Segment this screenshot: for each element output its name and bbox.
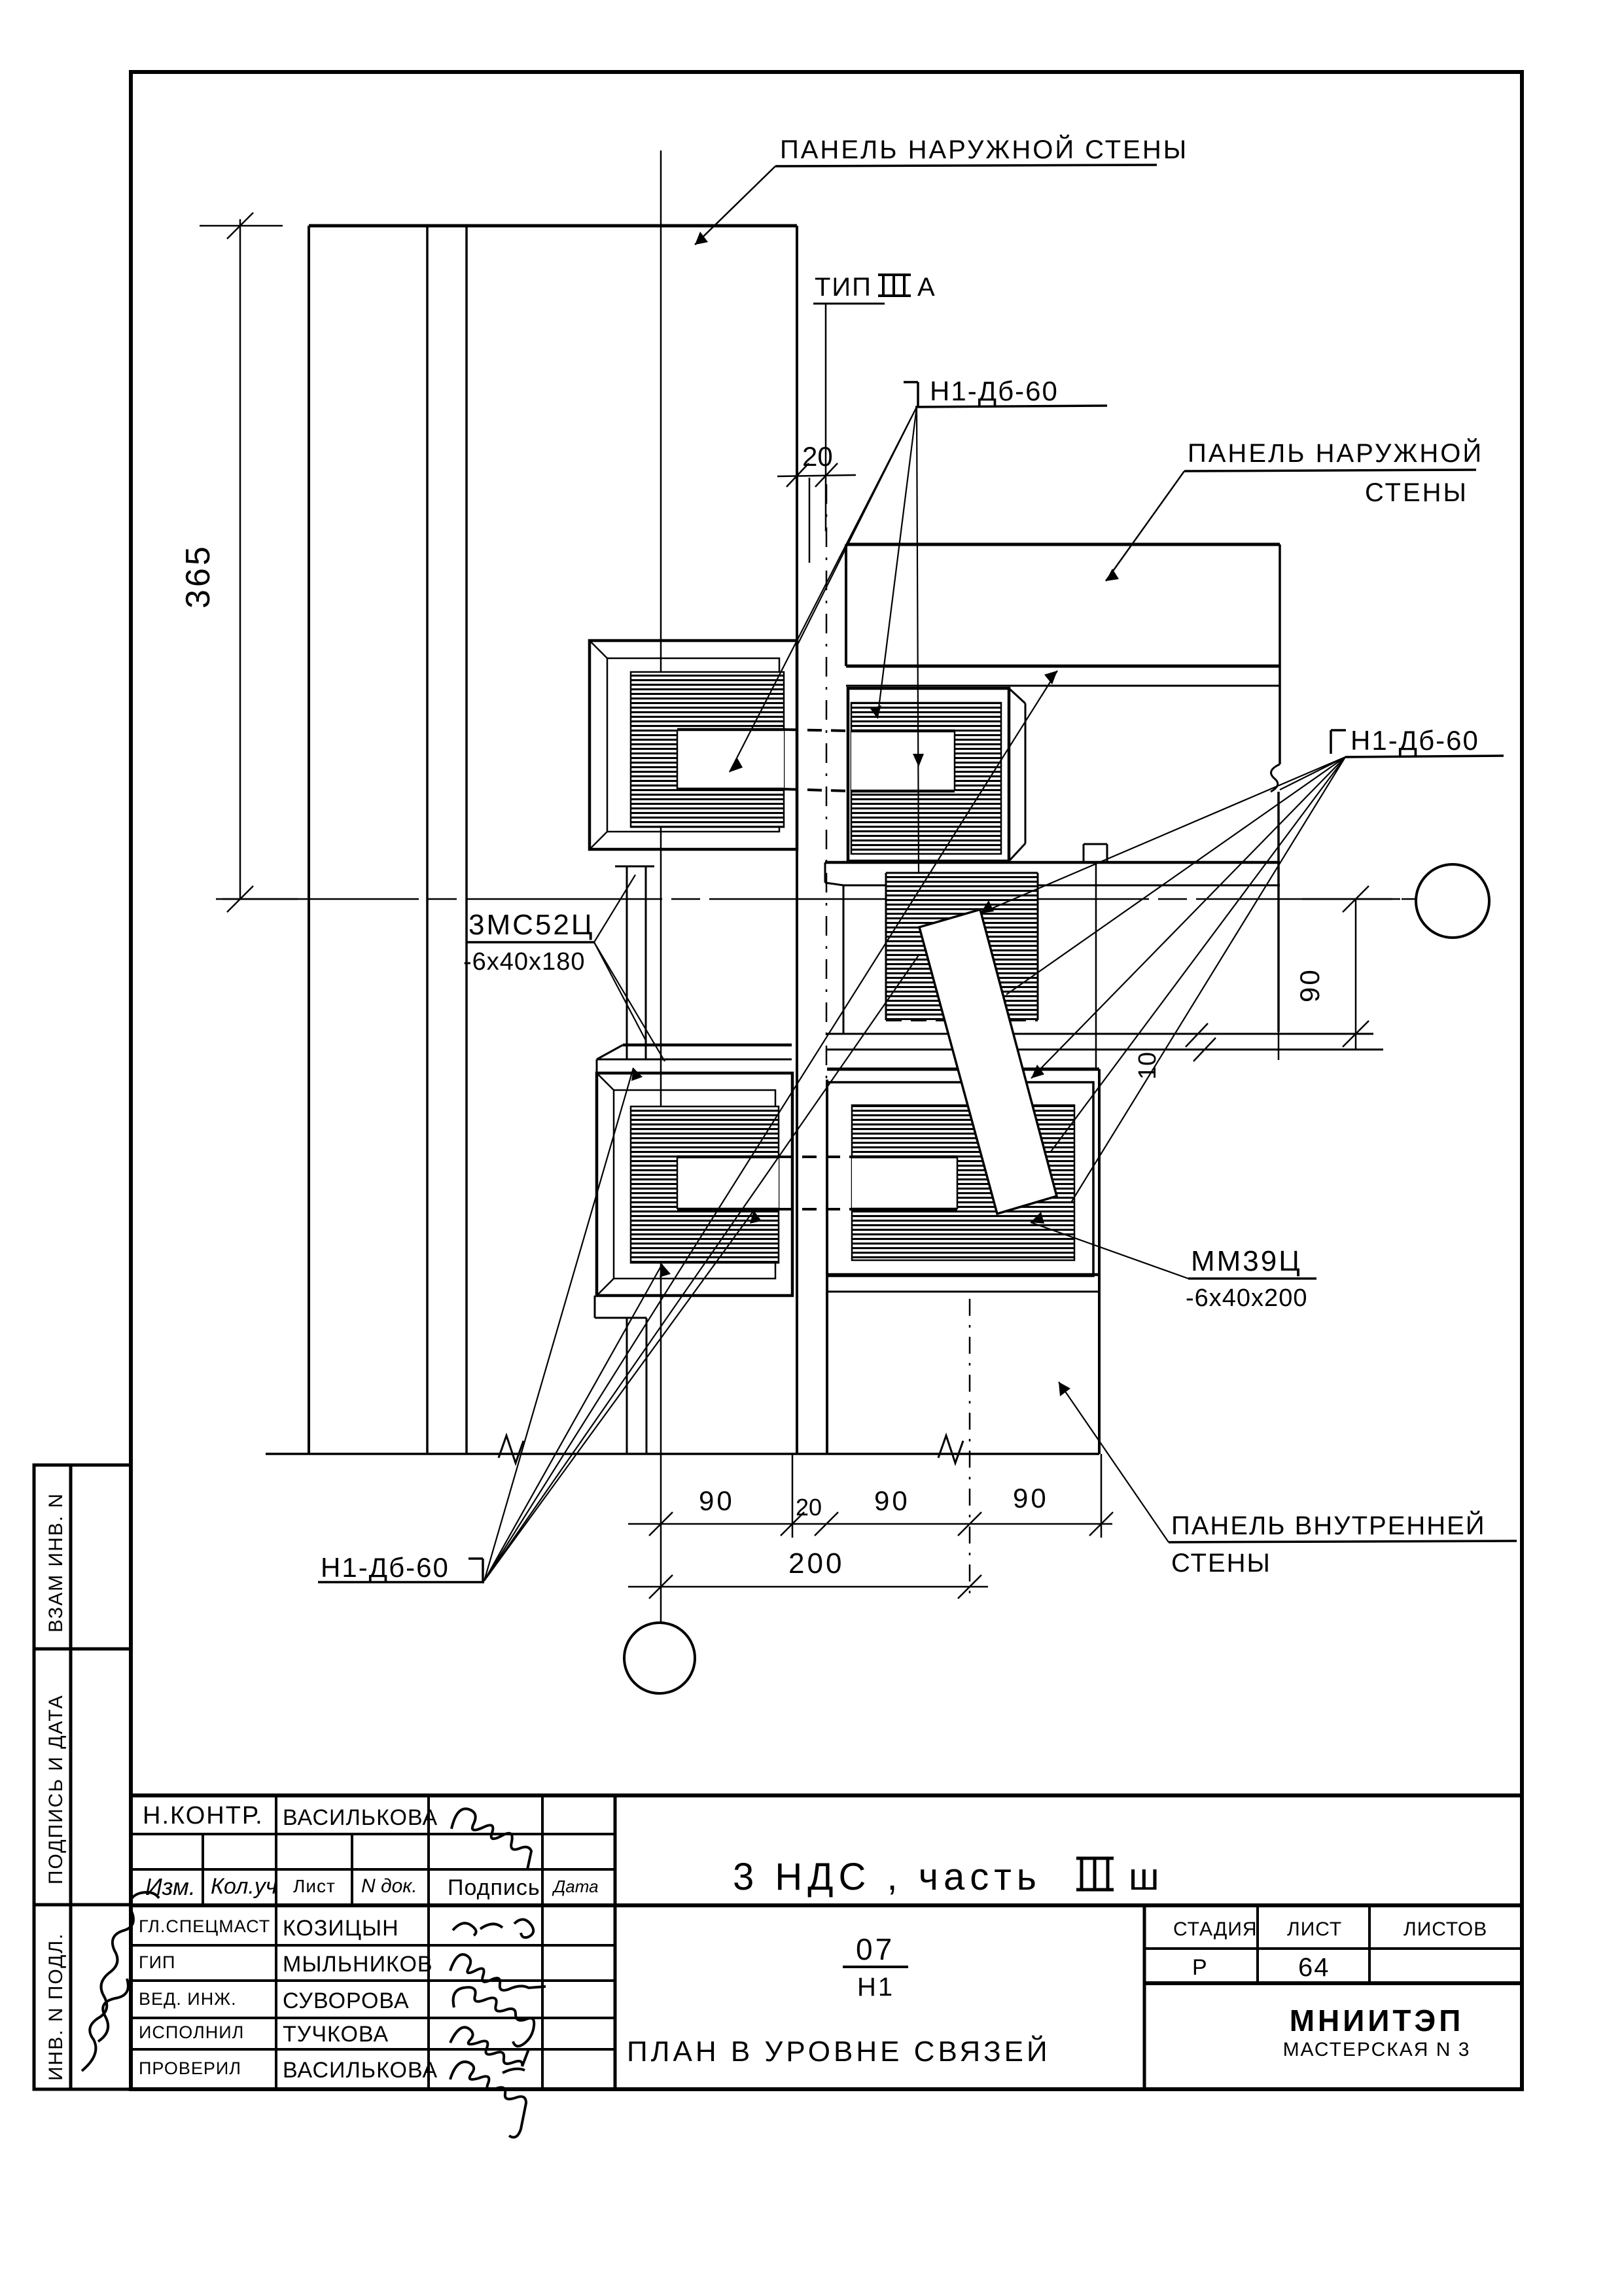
svg-text:ТУЧКОВА: ТУЧКОВА [283, 2022, 389, 2047]
svg-text:10: 10 [1134, 1052, 1161, 1080]
svg-text:3МС52Ц: 3МС52Ц [468, 909, 594, 941]
svg-text:ММ39Ц: ММ39Ц [1191, 1245, 1302, 1277]
svg-text:ВАСИЛЬКОВА: ВАСИЛЬКОВА [283, 2058, 438, 2083]
svg-text:ПРОВЕРИЛ: ПРОВЕРИЛ [139, 2058, 241, 2078]
svg-text:КОЗИЦЫН: КОЗИЦЫН [283, 1916, 399, 1941]
svg-text:-6х40х200: -6х40х200 [1186, 1284, 1307, 1312]
svg-text:20: 20 [802, 441, 833, 472]
svg-text:Р: Р [1192, 1955, 1207, 1980]
svg-text:СТЕНЫ: СТЕНЫ [1171, 1549, 1271, 1578]
svg-text:ГЛ.СПЕЦМАСТ: ГЛ.СПЕЦМАСТ [139, 1916, 270, 1936]
svg-text:Подпись: Подпись [448, 1875, 540, 1900]
svg-text:Дата: Дата [552, 1877, 599, 1896]
svg-text:20: 20 [796, 1494, 822, 1521]
svg-text:ПОДПИСЬ И ДАТА: ПОДПИСЬ И ДАТА [45, 1694, 67, 1884]
svg-text:ВАСИЛЬКОВА: ВАСИЛЬКОВА [283, 1805, 438, 1830]
svg-text:ш: ш [1129, 1856, 1159, 1898]
svg-text:90: 90 [874, 1485, 910, 1516]
svg-text:МЫЛЬНИКОВ: МЫЛЬНИКОВ [283, 1952, 433, 1977]
svg-text:200: 200 [788, 1547, 844, 1580]
svg-text:ЛИСТ: ЛИСТ [1287, 1918, 1342, 1940]
svg-text:Кол.уч: Кол.уч [211, 1874, 277, 1899]
svg-text:Н1: Н1 [857, 1973, 894, 2002]
svg-text:Н1-Дб-60: Н1-Дб-60 [1350, 725, 1479, 756]
svg-text:СТЕНЫ: СТЕНЫ [1365, 478, 1468, 507]
svg-text:ПАНЕЛЬ НАРУЖНОЙ: ПАНЕЛЬ НАРУЖНОЙ [1188, 438, 1483, 468]
svg-text:ИСПОЛНИЛ: ИСПОЛНИЛ [139, 2022, 244, 2042]
svg-text:ВЕД. ИНЖ.: ВЕД. ИНЖ. [139, 1989, 237, 2009]
svg-text:ТИП: ТИП [815, 273, 872, 302]
svg-text:ГИП: ГИП [139, 1952, 175, 1972]
svg-text:365: 365 [179, 544, 217, 609]
svg-text:А: А [917, 273, 935, 302]
svg-text:МНИИТЭП: МНИИТЭП [1290, 2004, 1464, 2038]
svg-text:ПЛАН В УРОВНЕ СВЯЗЕЙ: ПЛАН В УРОВНЕ СВЯЗЕЙ [627, 2034, 1051, 2068]
svg-text:ПАНЕЛЬ ВНУТРЕННЕЙ: ПАНЕЛЬ ВНУТРЕННЕЙ [1171, 1510, 1486, 1540]
svg-text:ВЗАМ ИНВ. N: ВЗАМ ИНВ. N [45, 1492, 67, 1633]
svg-text:90: 90 [699, 1485, 735, 1516]
svg-text:Н1-Дб-60: Н1-Дб-60 [930, 376, 1059, 406]
svg-text:Лист: Лист [293, 1876, 336, 1896]
svg-text:3 НДС , часть: 3 НДС , часть [733, 1856, 1042, 1898]
svg-text:ПАНЕЛЬ НАРУЖНОЙ СТЕНЫ: ПАНЕЛЬ НАРУЖНОЙ СТЕНЫ [780, 134, 1188, 164]
svg-text:МАСТЕРСКАЯ N 3: МАСТЕРСКАЯ N 3 [1283, 2039, 1471, 2060]
svg-text:07: 07 [856, 1932, 894, 1966]
svg-text:90: 90 [1013, 1483, 1049, 1513]
svg-text:-6х40х180: -6х40х180 [463, 948, 585, 976]
svg-text:Изм.: Изм. [145, 1873, 196, 1900]
svg-text:90: 90 [1294, 968, 1325, 1002]
svg-text:64: 64 [1298, 1953, 1330, 1982]
svg-text:ИНВ. N ПОДЛ.: ИНВ. N ПОДЛ. [45, 1933, 67, 2081]
svg-text:ЛИСТОВ: ЛИСТОВ [1403, 1918, 1487, 1940]
svg-text:N док.: N док. [361, 1875, 417, 1897]
svg-text:СУВОРОВА: СУВОРОВА [283, 1988, 410, 2013]
svg-text:СТАДИЯ: СТАДИЯ [1173, 1918, 1258, 1940]
svg-text:Н.КОНТР.: Н.КОНТР. [143, 1802, 264, 1829]
svg-text:Н1-Дб-60: Н1-Дб-60 [321, 1552, 450, 1583]
